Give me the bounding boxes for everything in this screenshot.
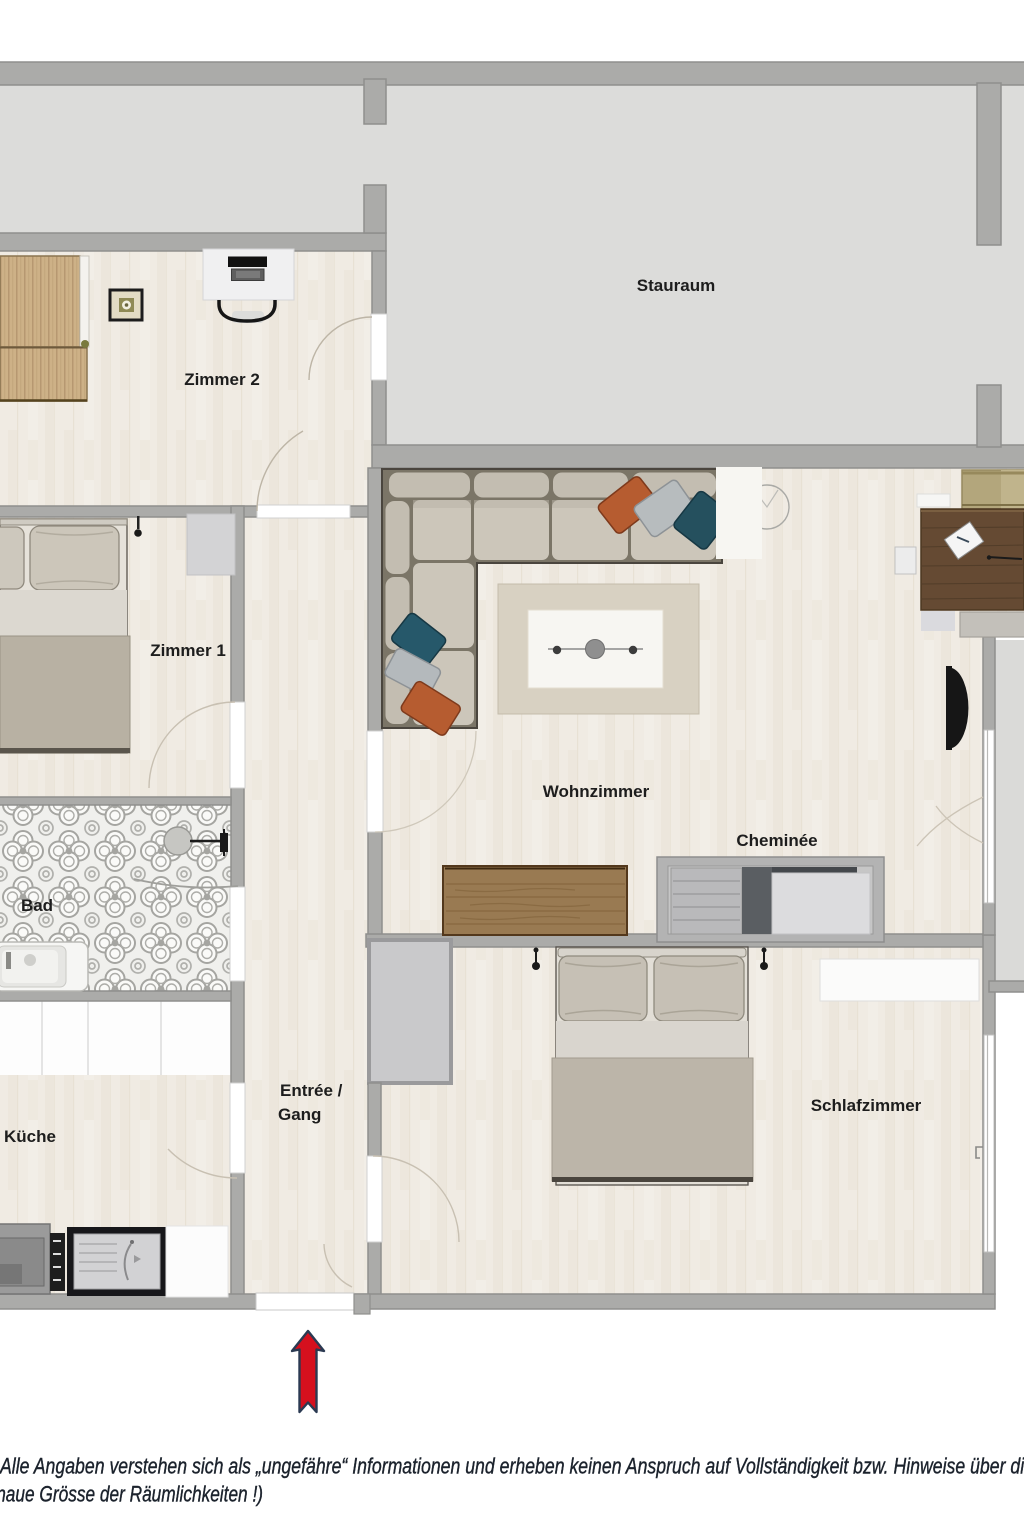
svg-text:Gang: Gang: [278, 1105, 321, 1124]
svg-text:Schlafzimmer: Schlafzimmer: [811, 1096, 922, 1115]
svg-text:Wohnzimmer: Wohnzimmer: [543, 782, 650, 801]
svg-text:Bad: Bad: [21, 896, 53, 915]
svg-text:Alle Angaben verstehen sich al: Alle Angaben verstehen sich als „ungefäh…: [0, 1454, 1024, 1479]
svg-text:Küche: Küche: [4, 1127, 56, 1146]
svg-text:Entrée /: Entrée /: [280, 1081, 343, 1100]
svg-text:Zimmer 2: Zimmer 2: [184, 370, 260, 389]
svg-text:Stauraum: Stauraum: [637, 276, 715, 295]
svg-text:genaue Grösse der Räumlichkeit: genaue Grösse der Räumlichkeiten !): [0, 1482, 263, 1507]
svg-text:Cheminée: Cheminée: [736, 831, 817, 850]
svg-text:Zimmer 1: Zimmer 1: [150, 641, 226, 660]
